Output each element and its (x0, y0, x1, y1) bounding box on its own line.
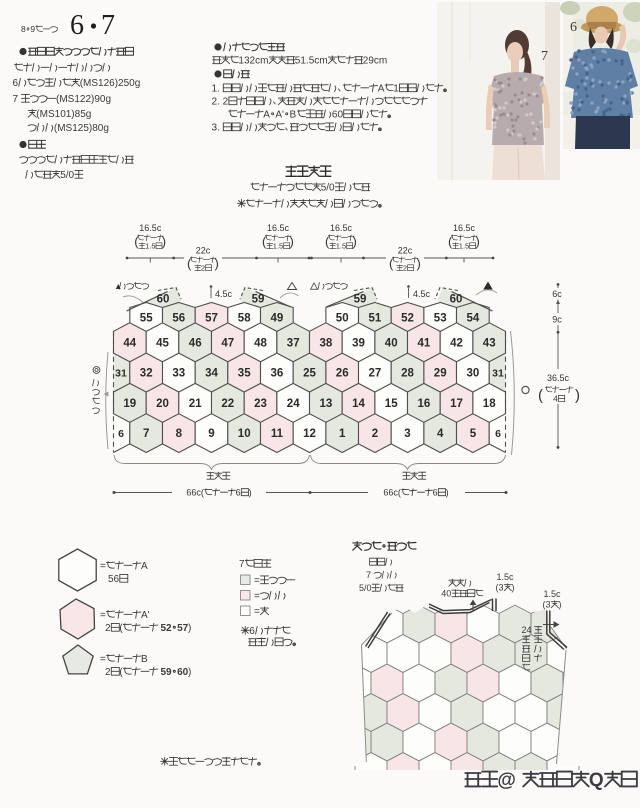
svg-text:20: 20 (156, 398, 169, 410)
svg-text:41: 41 (418, 337, 431, 349)
svg-text:22: 22 (221, 398, 234, 410)
svg-text:5/0: 5/0 (359, 583, 372, 593)
svg-text:51.5cm: 51.5cm (295, 56, 328, 67)
svg-text:4: 4 (553, 395, 558, 404)
svg-text:2. 2: 2. 2 (212, 97, 229, 108)
svg-text:7: 7 (143, 428, 149, 440)
svg-text:38: 38 (320, 337, 333, 349)
svg-text:60: 60 (157, 294, 170, 306)
svg-text:60: 60 (450, 294, 463, 306)
svg-text:12: 12 (303, 428, 316, 440)
svg-text:B: B (141, 654, 148, 665)
svg-text:35: 35 (238, 368, 251, 380)
svg-text:1.5c: 1.5c (497, 572, 515, 582)
svg-text:17: 17 (450, 398, 463, 410)
svg-text:8: 8 (21, 24, 26, 34)
svg-text:9: 9 (30, 24, 35, 34)
svg-text:31: 31 (492, 368, 504, 380)
svg-text:6: 6 (70, 10, 84, 41)
svg-text:52: 52 (401, 313, 414, 325)
svg-text:): ) (559, 600, 562, 610)
svg-text:2: 2 (105, 667, 111, 678)
svg-text:51: 51 (369, 313, 382, 325)
svg-text:(: ( (538, 387, 543, 404)
svg-text:25: 25 (303, 368, 316, 380)
svg-text:43: 43 (483, 337, 496, 349)
svg-text:39: 39 (352, 337, 365, 349)
svg-text:(MS125)80g: (MS125)80g (54, 123, 109, 134)
svg-text:=: = (100, 561, 106, 572)
svg-text:6: 6 (249, 626, 255, 637)
svg-text:16.5c: 16.5c (267, 223, 290, 233)
svg-text:7: 7 (541, 49, 548, 64)
svg-text:24: 24 (287, 398, 300, 410)
svg-text:): ) (476, 234, 480, 249)
svg-text:10: 10 (238, 428, 251, 440)
svg-text:4.5c: 4.5c (413, 289, 431, 299)
svg-text:): ) (215, 256, 219, 271)
svg-text:5/0: 5/0 (60, 170, 74, 181)
svg-text:22c: 22c (196, 246, 211, 256)
svg-text:(: ( (262, 234, 267, 249)
svg-text:56: 56 (108, 574, 120, 585)
svg-text:Q: Q (589, 770, 604, 791)
svg-text:48: 48 (254, 337, 267, 349)
svg-text:1.5: 1.5 (336, 242, 346, 251)
svg-text:1: 1 (339, 428, 346, 440)
svg-text:): ) (512, 583, 515, 593)
svg-text:6: 6 (570, 20, 577, 35)
svg-text:): ) (162, 234, 166, 249)
svg-text:66c(: 66c( (383, 488, 401, 498)
svg-text:132cm: 132cm (238, 56, 268, 67)
svg-text:): ) (290, 234, 294, 249)
svg-text:5/0: 5/0 (321, 183, 335, 194)
svg-text:(3: (3 (543, 600, 551, 610)
svg-text:(: ( (134, 234, 139, 249)
svg-text:6: 6 (118, 428, 124, 440)
svg-text:6c: 6c (552, 289, 562, 299)
svg-text:60: 60 (177, 667, 189, 678)
svg-text:57: 57 (205, 313, 218, 325)
svg-text:(3: (3 (496, 583, 504, 593)
svg-text:8: 8 (176, 428, 183, 440)
svg-text:24: 24 (522, 625, 532, 635)
svg-text:6: 6 (495, 428, 501, 440)
svg-text:): ) (188, 623, 191, 634)
svg-text:36.5c: 36.5c (547, 373, 570, 383)
svg-text:2: 2 (201, 264, 205, 273)
svg-text:59: 59 (252, 294, 265, 306)
svg-text:=: = (100, 610, 106, 621)
svg-text:A': A' (275, 110, 284, 121)
svg-text:): ) (353, 234, 357, 249)
svg-text:▲: ▲ (114, 281, 122, 291)
svg-text:4.5c: 4.5c (215, 289, 233, 299)
svg-text:16.5c: 16.5c (330, 223, 353, 233)
svg-text:34: 34 (205, 368, 218, 380)
svg-text:7: 7 (239, 559, 245, 570)
svg-text:(MS101)85g: (MS101)85g (36, 109, 91, 120)
svg-text:49: 49 (271, 313, 284, 325)
svg-text:3: 3 (404, 428, 410, 440)
svg-text:23: 23 (254, 398, 267, 410)
svg-text:1.5: 1.5 (459, 242, 469, 251)
svg-text:19: 19 (123, 398, 136, 410)
svg-text:40: 40 (385, 337, 398, 349)
svg-text:16: 16 (418, 398, 431, 410)
svg-text:(MS122)90g: (MS122)90g (56, 94, 111, 105)
svg-text:22c: 22c (398, 246, 413, 256)
svg-text:1: 1 (393, 84, 399, 95)
svg-text:@: @ (497, 770, 516, 791)
svg-text:21: 21 (189, 398, 202, 410)
svg-text:42: 42 (450, 337, 463, 349)
svg-text:28: 28 (401, 368, 414, 380)
svg-text:59: 59 (354, 294, 367, 306)
svg-text:7: 7 (366, 570, 371, 580)
svg-text:37: 37 (287, 337, 300, 349)
svg-text:14: 14 (352, 398, 365, 410)
svg-text:15: 15 (385, 398, 398, 410)
svg-text:): ) (446, 488, 449, 498)
svg-text:): ) (575, 387, 580, 404)
svg-text:31: 31 (115, 368, 127, 380)
svg-text:5: 5 (470, 428, 477, 440)
svg-text:27: 27 (369, 368, 382, 380)
svg-text:3.: 3. (212, 123, 220, 134)
svg-text:26: 26 (336, 368, 349, 380)
svg-text:=: = (254, 576, 260, 587)
svg-text:A: A (141, 561, 148, 572)
svg-text:45: 45 (156, 337, 169, 349)
svg-text:54: 54 (467, 313, 480, 325)
svg-text:): ) (249, 488, 252, 498)
svg-text:=: = (254, 591, 260, 602)
svg-text:56: 56 (172, 313, 185, 325)
svg-text:66c(: 66c( (186, 488, 204, 498)
svg-text:40: 40 (441, 589, 451, 599)
svg-text:4: 4 (437, 428, 444, 440)
svg-text:29cm: 29cm (363, 56, 387, 67)
svg-text:18: 18 (483, 398, 496, 410)
svg-text:2: 2 (105, 623, 111, 634)
svg-text:11: 11 (271, 428, 284, 440)
svg-text:(: ( (448, 234, 453, 249)
svg-text:B: B (290, 110, 297, 121)
svg-text:): ) (188, 667, 191, 678)
svg-text:9c: 9c (552, 315, 562, 325)
svg-text:59: 59 (161, 667, 173, 678)
svg-text:7: 7 (101, 10, 115, 41)
svg-text:(: ( (389, 256, 394, 271)
svg-text:(MS126)250g: (MS126)250g (80, 78, 141, 89)
svg-text:52: 52 (161, 623, 173, 634)
svg-text:36: 36 (271, 368, 284, 380)
svg-text:7: 7 (13, 94, 19, 105)
svg-text:58: 58 (238, 313, 251, 325)
svg-text:55: 55 (140, 313, 153, 325)
svg-text:13: 13 (320, 398, 333, 410)
svg-text:32: 32 (140, 368, 153, 380)
svg-text:6: 6 (13, 78, 19, 89)
svg-text:50: 50 (336, 313, 349, 325)
svg-text:57: 57 (177, 623, 189, 634)
svg-text:6: 6 (433, 488, 438, 498)
svg-text:1.5: 1.5 (145, 242, 155, 251)
svg-text:1.: 1. (212, 84, 220, 95)
svg-text:29: 29 (434, 368, 447, 380)
svg-text:6: 6 (236, 488, 241, 498)
svg-text:60: 60 (332, 110, 344, 121)
svg-text:47: 47 (221, 337, 234, 349)
svg-text:2: 2 (403, 264, 407, 273)
svg-text:30: 30 (467, 368, 480, 380)
svg-text:A: A (378, 84, 385, 95)
svg-text:1.5c: 1.5c (544, 589, 562, 599)
svg-text:44: 44 (123, 337, 136, 349)
svg-text:): ) (417, 256, 421, 271)
svg-text:=: = (100, 654, 106, 665)
svg-text:9: 9 (208, 428, 214, 440)
svg-text:16.5c: 16.5c (453, 223, 476, 233)
svg-text:2: 2 (372, 428, 378, 440)
svg-text:16.5c: 16.5c (139, 223, 162, 233)
svg-text:(: ( (325, 234, 330, 249)
svg-text:46: 46 (189, 337, 202, 349)
svg-text:1.5: 1.5 (273, 242, 283, 251)
svg-text:A: A (263, 110, 270, 121)
svg-text:53: 53 (434, 313, 447, 325)
svg-text:A': A' (141, 610, 150, 621)
svg-text:33: 33 (172, 368, 185, 380)
svg-text:(: ( (187, 256, 192, 271)
svg-text:=: = (254, 607, 260, 618)
